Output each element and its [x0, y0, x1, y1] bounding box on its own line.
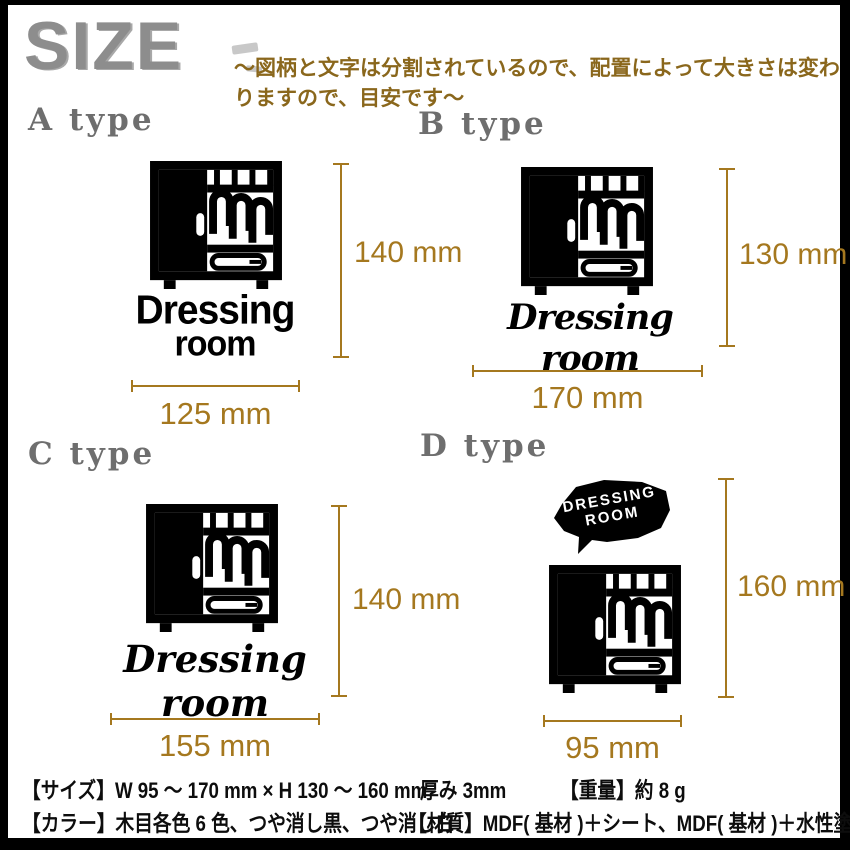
type-c-width-line: [110, 718, 320, 720]
type-c-height-value: 140 mm: [352, 583, 460, 617]
type-b-height-value: 130 mm: [739, 238, 847, 272]
frame-border-right: [840, 0, 850, 850]
type-b-label: B type: [418, 106, 547, 142]
spec-color: 【カラー】木目各色 6 色、つや消し黒、つや消し白: [22, 806, 454, 838]
type-c-height-line: [338, 505, 340, 697]
wardrobe-icon: [146, 504, 278, 632]
type-b-height-line: [726, 168, 728, 347]
type-b-width-value: 170 mm: [472, 380, 703, 416]
spec-size: 【サイズ】W 95 ～ 170 mm × H 130 ～ 160 mm: [22, 773, 427, 805]
speech-bubble-text: DRESSING ROOM: [554, 471, 668, 547]
type-a-height-value: 140 mm: [354, 236, 462, 270]
type-d-width-line: [543, 720, 682, 722]
type-a-sign-text: Dressing room: [110, 293, 320, 360]
wardrobe-icon: [150, 161, 282, 289]
spec-weight: 【重量】約 8 g: [560, 773, 686, 805]
frame-border-left: [0, 0, 8, 850]
type-d-height-value: 160 mm: [737, 570, 845, 604]
type-c-sign-text: Dressing room: [85, 637, 345, 725]
spec-material: 【材質】MDF( 基材 )＋シート、MDF( 基材 )＋水性塗料: [408, 806, 850, 838]
type-d-label: D type: [420, 428, 549, 464]
frame-border-top: [0, 0, 850, 5]
type-a-width-value: 125 mm: [131, 396, 300, 432]
type-a-width-line: [131, 385, 300, 387]
type-b-width-line: [472, 370, 703, 372]
type-c-width-value: 155 mm: [110, 728, 320, 764]
size-logo: SIZE: [24, 12, 183, 80]
speech-bubble: DRESSING ROOM: [552, 478, 670, 556]
type-d-height-line: [725, 478, 727, 698]
header-note: ～図柄と文字は分割されているので、配置によって大きさは変わりますので、目安です～: [234, 52, 850, 112]
type-a-height-line: [340, 163, 342, 358]
sign-text-line2: room: [110, 328, 320, 361]
type-c-label: C type: [28, 436, 155, 472]
wardrobe-icon: [549, 565, 681, 693]
frame-border-bottom: [0, 838, 850, 850]
type-d-width-value: 95 mm: [543, 730, 682, 766]
wardrobe-icon: [521, 167, 653, 295]
type-b-sign-text: Dressing room: [455, 297, 725, 379]
size-chart-page: SIZE ～図柄と文字は分割されているので、配置によって大きさは変わりますので、…: [0, 0, 850, 850]
type-a-label: A type: [28, 102, 155, 138]
spec-thickness: 厚み 3mm: [420, 773, 506, 805]
